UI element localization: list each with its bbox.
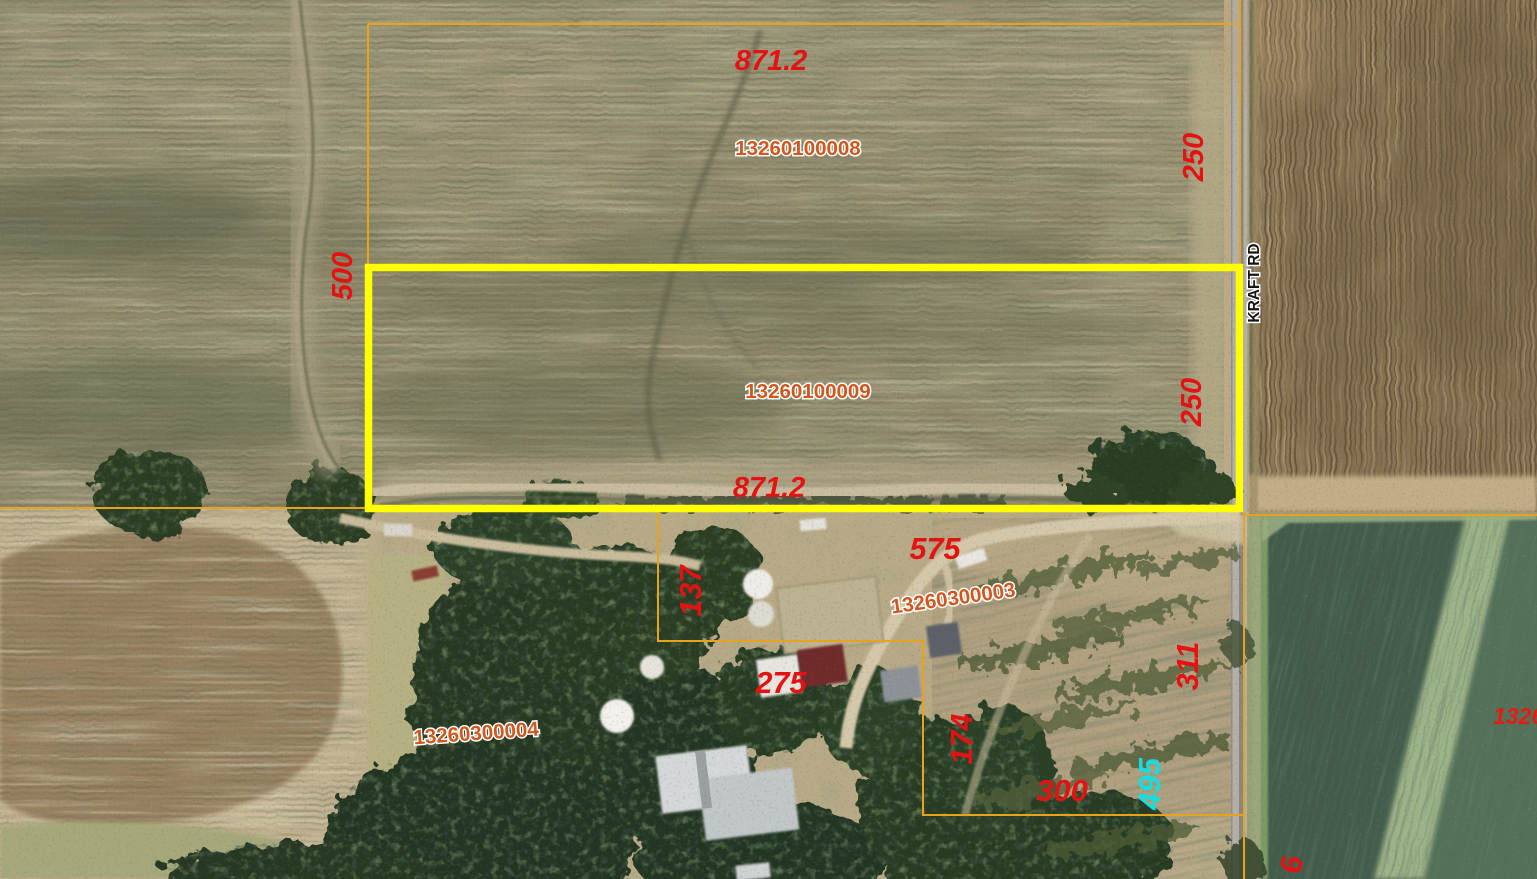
svg-text:250: 250 <box>1176 378 1208 427</box>
svg-text:575: 575 <box>910 532 962 566</box>
svg-text:300: 300 <box>1036 773 1088 808</box>
svg-text:13260100009: 13260100009 <box>745 380 870 403</box>
svg-text:871.2: 871.2 <box>735 45 808 77</box>
svg-text:311: 311 <box>1171 642 1205 691</box>
svg-text:495: 495 <box>1132 757 1167 810</box>
svg-text:KRAFT RD: KRAFT RD <box>1246 243 1263 322</box>
svg-text:871.2: 871.2 <box>733 472 806 504</box>
svg-text:13260100008: 13260100008 <box>735 137 860 160</box>
svg-text:137: 137 <box>674 564 708 617</box>
svg-text:1326: 1326 <box>1493 703 1537 729</box>
svg-text:174: 174 <box>945 714 979 765</box>
svg-text:500: 500 <box>327 252 359 300</box>
svg-text:6: 6 <box>1274 856 1309 874</box>
svg-text:250: 250 <box>1178 133 1210 182</box>
svg-text:275: 275 <box>755 666 808 700</box>
